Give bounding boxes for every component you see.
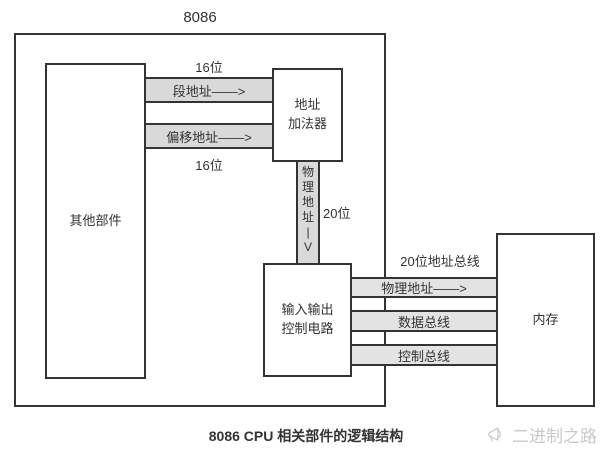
bus-width-label-16-bottom: 16位	[145, 155, 273, 174]
memory-label: 内存	[532, 311, 558, 330]
address-bus-label: 20位地址总线	[380, 251, 500, 270]
physical-address-vertical-label: 物理地址	[301, 165, 315, 225]
physical-address-bus: 物理地址——>	[352, 277, 496, 298]
megaphone-icon	[486, 424, 508, 446]
down-arrow-stem: |	[298, 225, 318, 240]
address-adder-label-line2: 加法器	[288, 115, 327, 134]
segment-address-bus: 段地址——>	[145, 77, 273, 103]
watermark-text: 二进制之路	[512, 422, 597, 447]
cpu-title: 8086	[14, 9, 386, 26]
io-control-label-line1: 输入输出	[281, 301, 333, 320]
diagram-canvas: 8086 16位 段地址——> 偏移地址——> 16位 物理地址 | V 20位…	[0, 0, 612, 462]
control-bus: 控制总线	[352, 344, 496, 366]
watermark: 二进制之路	[486, 422, 597, 447]
memory-box: 内存	[496, 233, 595, 407]
address-adder-box: 地址 加法器	[272, 68, 343, 162]
offset-address-bus: 偏移地址——>	[145, 123, 273, 149]
other-components-box: 其他部件	[45, 63, 146, 379]
down-arrow-head: V	[298, 240, 318, 255]
bus-width-label-20: 20位	[323, 203, 350, 222]
address-adder-label-line1: 地址	[294, 96, 320, 115]
physical-address-vertical-bus: 物理地址 | V	[296, 162, 320, 263]
other-components-label: 其他部件	[69, 212, 121, 231]
bus-width-label-16-top: 16位	[145, 57, 273, 76]
data-bus: 数据总线	[352, 310, 496, 332]
io-control-label-line2: 控制电路	[281, 320, 333, 339]
io-control-circuit-box: 输入输出 控制电路	[263, 263, 352, 377]
